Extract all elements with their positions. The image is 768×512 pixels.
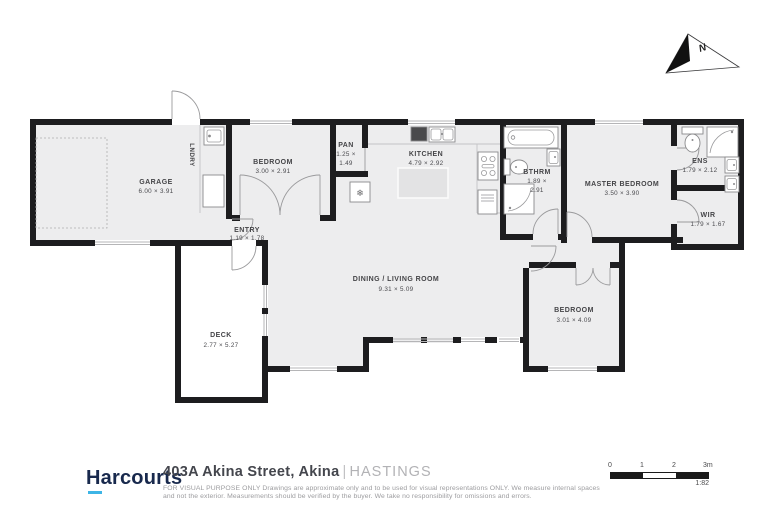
address-separator: | bbox=[339, 464, 349, 480]
island-bench bbox=[398, 168, 448, 198]
pantry-dims-1: 1.25 × bbox=[336, 151, 356, 158]
vanity-icon bbox=[547, 149, 560, 166]
address-text: 403A Akina Street, Akina bbox=[163, 464, 339, 480]
window-deck-2 bbox=[262, 314, 268, 336]
laundry-label: LNDRY bbox=[188, 143, 195, 167]
scale-tick-2: 2 bbox=[672, 462, 676, 469]
bedroom1-dims: 3.00 × 2.91 bbox=[256, 168, 291, 175]
scale-bar-graphic bbox=[610, 472, 709, 479]
master-bedroom-label: MASTER BEDROOM bbox=[585, 181, 659, 188]
scale-ticks: 0 1 2 3m bbox=[610, 462, 720, 471]
scale-bar: 0 1 2 3m 1:82 bbox=[610, 462, 720, 487]
scale-tick-3: 3m bbox=[703, 462, 713, 469]
heat-pump-icon: ❄ bbox=[350, 182, 370, 202]
ensuite-dims: 1.79 × 2.12 bbox=[683, 167, 718, 174]
ens-shower-icon bbox=[707, 127, 738, 157]
scale-tick-0: 0 bbox=[608, 462, 612, 469]
scale-tick-1: 1 bbox=[640, 462, 644, 469]
bathroom-dims-1: 1.89 × bbox=[527, 178, 547, 185]
floorplan-drawing: ❄ GARAGE6.00 × 3.91 LNDRY BEDROOM3.00 × … bbox=[0, 0, 768, 455]
kitchen-label: KITCHEN bbox=[409, 151, 443, 158]
ensuite-label: ENS bbox=[692, 158, 708, 165]
disclaimer: FOR VISUAL PURPOSE ONLY Drawings are app… bbox=[163, 485, 600, 500]
laundry-tub-icon bbox=[204, 127, 224, 145]
ens-vanity-icon-1 bbox=[725, 157, 739, 173]
window-living-left bbox=[290, 366, 337, 372]
pantry-dims-2: 1.49 bbox=[339, 160, 353, 167]
svg-text:ENTRY1.19 × 1.78: ENTRY1.19 × 1.78 bbox=[230, 227, 265, 242]
oven-icon bbox=[411, 127, 427, 141]
master-bedroom-dims: 3.50 × 3.90 bbox=[605, 190, 640, 197]
window-bedroom1 bbox=[250, 119, 292, 125]
kitchen-sink-icon bbox=[429, 127, 455, 142]
logo-underline bbox=[88, 491, 102, 494]
entry-label: ENTRY bbox=[234, 227, 260, 234]
door-garage-exterior bbox=[172, 91, 200, 119]
deck-dims: 2.77 × 5.27 bbox=[204, 342, 239, 349]
disclaimer-line-1: FOR VISUAL PURPOSE ONLY Drawings are app… bbox=[163, 485, 600, 493]
pantry-label: PAN bbox=[338, 142, 354, 149]
entry-dims: 1.19 × 1.78 bbox=[230, 235, 265, 242]
bathtub-icon bbox=[504, 127, 558, 148]
laundry-bench bbox=[203, 175, 224, 207]
window-bedroom2 bbox=[548, 366, 597, 372]
garage-label: GARAGE bbox=[139, 179, 172, 186]
address-locality: HASTINGS bbox=[350, 464, 432, 480]
window-living bbox=[461, 337, 485, 343]
wardrobe-dims: 1.79 × 1.67 bbox=[691, 221, 726, 228]
dishwasher-icon bbox=[478, 190, 497, 214]
kitchen-dims: 4.79 × 2.92 bbox=[409, 160, 444, 167]
wardrobe-label: WIR bbox=[701, 212, 716, 219]
bedroom2-dims: 3.01 × 4.09 bbox=[557, 317, 592, 324]
deck-label: DECK bbox=[210, 332, 232, 339]
window-garage bbox=[95, 240, 150, 246]
floorplan-page: ❄ GARAGE6.00 × 3.91 LNDRY BEDROOM3.00 × … bbox=[0, 0, 768, 512]
window-deck-1 bbox=[262, 285, 268, 308]
disclaimer-line-2: and not the exterior. Measurements shoul… bbox=[163, 493, 600, 501]
ens-vanity-icon-2 bbox=[725, 176, 739, 192]
cooktop-icon bbox=[478, 152, 498, 180]
bathroom-dims-2: 2.91 bbox=[530, 187, 544, 194]
north-arrow-icon: N bbox=[666, 34, 739, 73]
bathroom-label: BTHRM bbox=[523, 169, 551, 176]
property-address: 403A Akina Street, Akina|HASTINGS bbox=[163, 464, 432, 480]
svg-text:❄: ❄ bbox=[356, 188, 364, 198]
scale-ratio: 1:82 bbox=[610, 480, 709, 487]
living-label: DINING / LIVING ROOM bbox=[353, 276, 439, 283]
bedroom1-label: BEDROOM bbox=[253, 159, 293, 166]
bedroom2-label: BEDROOM bbox=[554, 307, 594, 314]
window-master bbox=[595, 119, 643, 125]
garage-dims: 6.00 × 3.91 bbox=[139, 188, 174, 195]
living-dims: 9.31 × 5.09 bbox=[379, 286, 414, 293]
window-kitchen bbox=[408, 119, 455, 125]
